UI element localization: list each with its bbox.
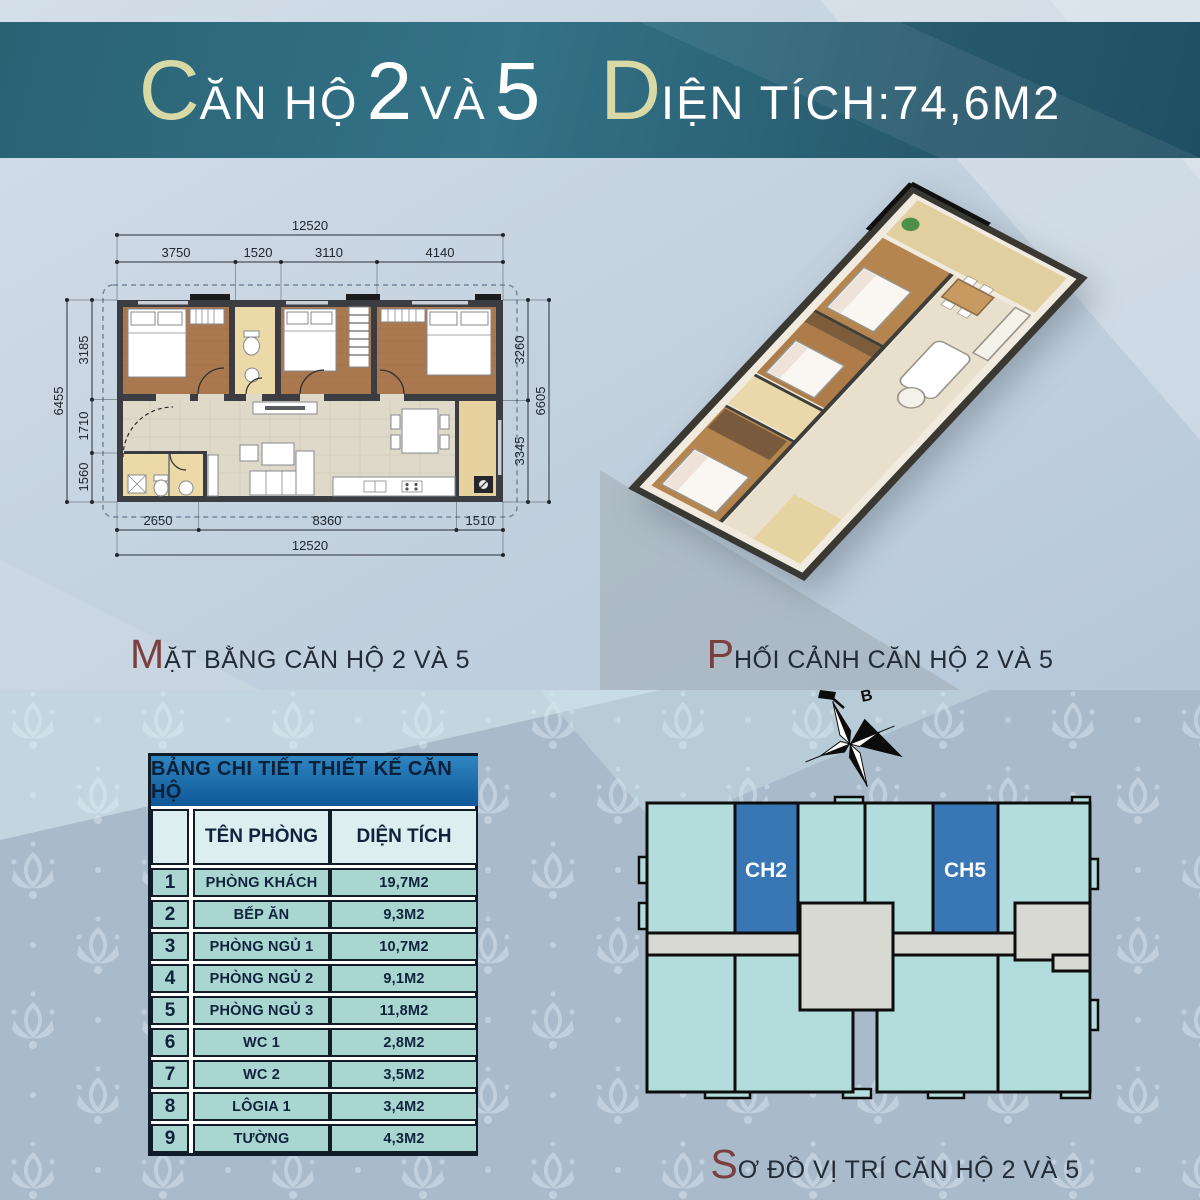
wc1-toilet <box>244 331 259 337</box>
row-name: PHÒNG NGỦ 3 <box>193 996 330 1025</box>
banner-area-initial: D <box>600 48 661 132</box>
caption-location-initial: S <box>710 1141 737 1187</box>
dim-left-seg-1: 1710 <box>76 412 91 441</box>
banner-area-value: 74,6M2 <box>892 79 1061 126</box>
dim-top-seg-1: 1520 <box>244 245 273 260</box>
compass-icon: B <box>800 686 930 801</box>
unit-bottom-right <box>877 955 1090 1092</box>
caption-location: SƠ ĐỒ VỊ TRÍ CĂN HỘ 2 VÀ 5 <box>700 1144 1090 1185</box>
dim-bottom-seg-0: 2650 <box>144 513 173 528</box>
dim-top-seg-2: 3110 <box>315 245 343 260</box>
dim-right-total: 6605 <box>533 387 548 416</box>
banner-apartment-title: CĂN HỘ2VÀ5 <box>139 48 548 133</box>
row-name: PHÒNG KHÁCH <box>193 868 330 897</box>
unit-top-1 <box>647 803 735 933</box>
side-table <box>240 445 258 461</box>
dim-top-total: 12520 <box>292 218 328 233</box>
row-area: 2,8M2 <box>330 1028 478 1057</box>
dim-bottom-seg-2: 1510 <box>466 513 495 528</box>
dim-bottom-seg-1: 8360 <box>313 513 342 528</box>
dim-right-seg-0: 3260 <box>512 336 527 365</box>
kitchen-counter <box>333 477 455 496</box>
row-name: LÔGIA 1 <box>193 1092 330 1121</box>
design-detail-table: BẢNG CHI TIẾT THIẾT KẾ CĂN HỘ TÊN PHÒNG … <box>148 753 478 1156</box>
row-area: 9,1M2 <box>330 964 478 993</box>
row-name: BẾP ĂN <box>193 900 330 929</box>
dim-top-seg-0: 3750 <box>162 245 191 260</box>
row-no: 2 <box>151 900 189 929</box>
caption-3d-view-text: HỐI CẢNH CĂN HỘ 2 VÀ 5 <box>734 646 1053 674</box>
wardrobe <box>349 307 369 367</box>
banner-apartment-num1: 2 <box>358 51 420 133</box>
wc1-sink <box>245 368 259 382</box>
coffee-table <box>262 443 294 465</box>
col-header-name: TÊN PHÒNG <box>193 809 330 865</box>
caption-3d-view: PHỐI CẢNH CĂN HỘ 2 VÀ 5 <box>700 634 1060 675</box>
dim-left-seg-0: 3185 <box>76 336 91 365</box>
row-name: WC 2 <box>193 1060 330 1089</box>
compass-north-label: B <box>859 687 874 706</box>
right-core <box>1015 903 1090 960</box>
dim-top-seg-3: 4140 <box>426 245 455 260</box>
floor-plan-3d <box>620 168 1110 608</box>
col-header-no <box>151 809 189 865</box>
row-name: TƯỜNG <box>193 1124 330 1153</box>
row-area: 11,8M2 <box>330 996 478 1025</box>
unit-ch2-label: CH2 <box>745 859 787 882</box>
row-no: 5 <box>151 996 189 1025</box>
unit-ch5-label: CH5 <box>944 859 986 882</box>
building-location-diagram: CH2 CH5 <box>635 795 1105 1100</box>
row-area: 19,7M2 <box>330 868 478 897</box>
row-no: 9 <box>151 1124 189 1153</box>
caption-floor-plan: MẶT BẰNG CĂN HỘ 2 VÀ 5 <box>110 634 490 675</box>
row-name: PHÒNG NGỦ 1 <box>193 932 330 961</box>
row-area: 3,4M2 <box>330 1092 478 1121</box>
banner-apartment-initial: C <box>139 48 200 132</box>
row-no: 8 <box>151 1092 189 1121</box>
col-header-area: DIỆN TÍCH <box>330 809 478 865</box>
row-name: WC 1 <box>193 1028 330 1057</box>
banner-apartment-text: ĂN HỘ <box>200 79 359 126</box>
building-outline: CH2 CH5 <box>639 797 1098 1098</box>
row-area: 10,7M2 <box>330 932 478 961</box>
banner-area-title: DIỆN TÍCH:74,6M2 <box>600 48 1061 132</box>
dining-table <box>402 409 438 453</box>
closet1 <box>190 309 224 324</box>
row-no: 7 <box>151 1060 189 1089</box>
caption-location-text: Ơ ĐỒ VỊ TRÍ CĂN HỘ 2 VÀ 5 <box>738 1156 1080 1184</box>
row-area: 9,3M2 <box>330 900 478 929</box>
sofa-chaise <box>296 451 314 495</box>
caption-3d-view-initial: P <box>707 631 734 677</box>
caption-floor-plan-text: ẶT BẰNG CĂN HỘ 2 VÀ 5 <box>164 646 470 674</box>
dim-left-seg-2: 1560 <box>76 463 91 492</box>
banner-area-text: IỆN TÍCH: <box>661 79 892 126</box>
hall-cabinet <box>208 455 218 496</box>
banner-apartment-conj: VÀ <box>420 79 487 126</box>
dim-bottom-total: 12520 <box>292 538 328 553</box>
row-area: 3,5M2 <box>330 1060 478 1089</box>
row-name: PHÒNG NGỦ 2 <box>193 964 330 993</box>
caption-floor-plan-initial: M <box>130 631 164 677</box>
wc2-sink <box>179 481 193 495</box>
row-area: 4,3M2 <box>330 1124 478 1153</box>
row-no: 1 <box>151 868 189 897</box>
core <box>800 903 893 1010</box>
row-no: 6 <box>151 1028 189 1057</box>
title-banner: CĂN HỘ2VÀ5 DIỆN TÍCH:74,6M2 <box>0 22 1200 158</box>
dim-right-seg-1: 3345 <box>512 437 527 466</box>
row-no: 3 <box>151 932 189 961</box>
row-no: 4 <box>151 964 189 993</box>
floor-plan-2d: 12520 3750 1520 3110 4140 6455 3185 1710… <box>50 205 560 575</box>
dim-left-total: 6455 <box>51 387 66 416</box>
table-title: BẢNG CHI TIẾT THIẾT KẾ CĂN HỘ <box>151 756 478 806</box>
banner-apartment-num2: 5 <box>487 51 549 133</box>
